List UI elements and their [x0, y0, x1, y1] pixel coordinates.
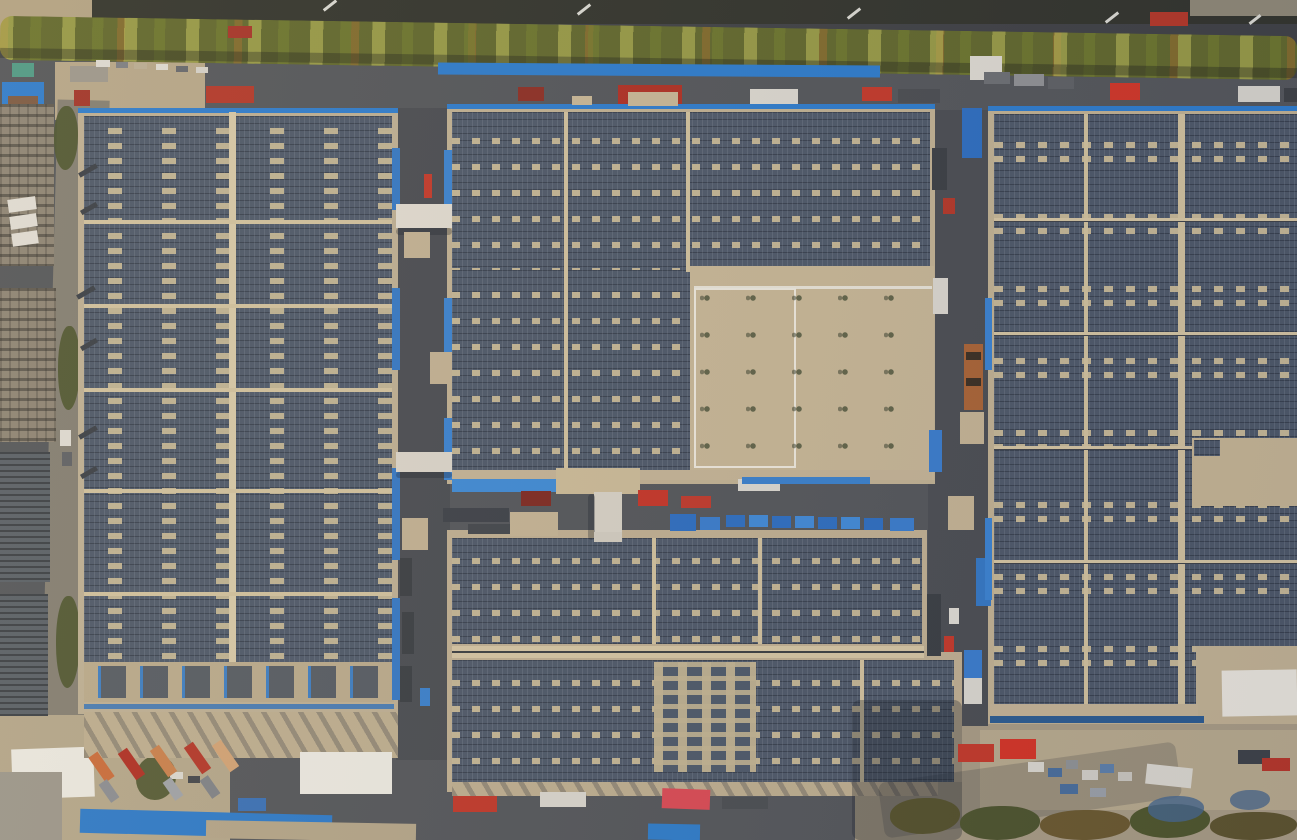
- sunlight-grade: [0, 0, 1297, 840]
- aerial-photo-canvas: [0, 0, 1297, 840]
